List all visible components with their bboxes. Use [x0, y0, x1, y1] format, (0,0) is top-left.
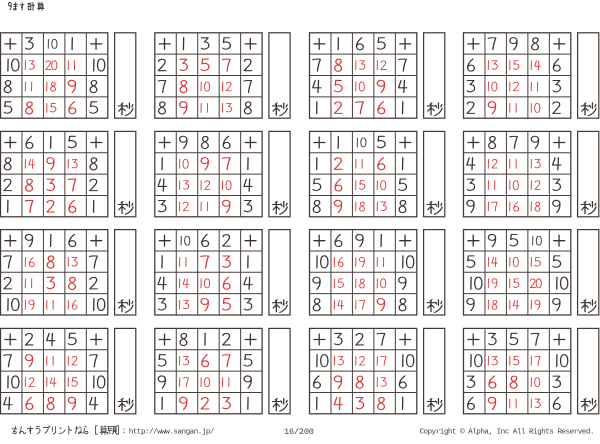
- svg-text:Copyright © Alpha, Inc All Rig: Copyright © Alpha, Inc All Rights Reserv…: [420, 428, 594, 437]
- svg-text:http://www.sangan.jp/: http://www.sangan.jp/: [129, 429, 215, 437]
- svg-text:16/200: 16/200: [284, 427, 314, 437]
